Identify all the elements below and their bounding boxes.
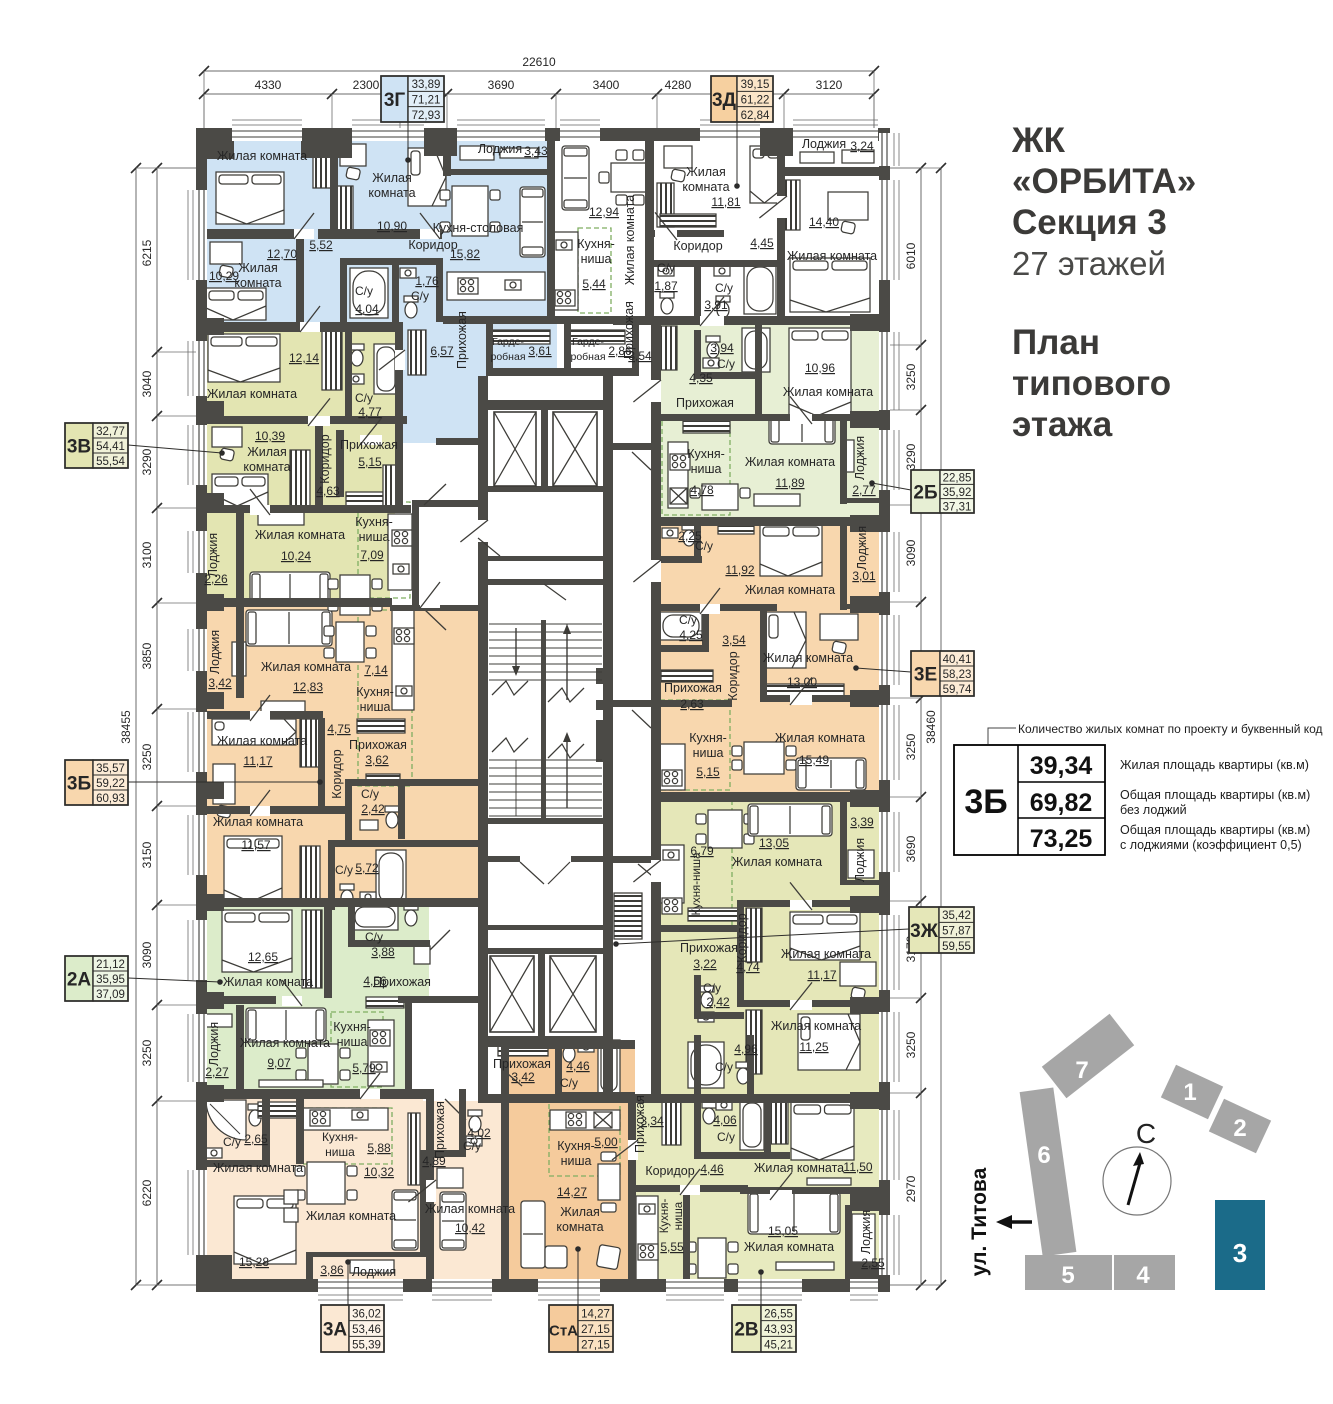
svg-text:4,74: 4,74 — [736, 960, 760, 974]
svg-text:11,17: 11,17 — [807, 968, 836, 982]
svg-text:Жилая: Жилая — [686, 165, 726, 179]
svg-text:4,45: 4,45 — [750, 236, 774, 250]
svg-text:1,76: 1,76 — [415, 274, 439, 288]
svg-text:35,42: 35,42 — [942, 910, 971, 922]
svg-text:Коридор: Коридор — [330, 749, 344, 798]
svg-text:40,41: 40,41 — [943, 654, 972, 666]
svg-text:Жилая комната: Жилая комната — [745, 583, 835, 597]
svg-text:3,62: 3,62 — [365, 753, 389, 767]
svg-text:15,49: 15,49 — [799, 753, 829, 767]
svg-text:11,17: 11,17 — [243, 754, 272, 768]
svg-text:3,39: 3,39 — [850, 815, 874, 829]
svg-text:С/у: С/у — [411, 289, 429, 303]
svg-text:5,44: 5,44 — [582, 277, 606, 291]
svg-text:Лоджия: Лоджия — [859, 1210, 873, 1254]
svg-text:комната: комната — [556, 1220, 603, 1234]
svg-text:3040: 3040 — [140, 370, 154, 397]
svg-text:2300: 2300 — [353, 78, 380, 92]
svg-text:Жилая комната: Жилая комната — [787, 249, 877, 263]
svg-text:С/у: С/у — [715, 1060, 733, 1074]
svg-text:С/у: С/у — [560, 1076, 578, 1090]
svg-text:71,21: 71,21 — [412, 95, 441, 107]
svg-text:5,15: 5,15 — [358, 455, 382, 469]
svg-text:Жилая комната: Жилая комната — [217, 149, 307, 163]
svg-text:3,42: 3,42 — [208, 676, 232, 690]
svg-text:2А: 2А — [67, 970, 92, 991]
svg-text:Жилая комната: Жилая комната — [623, 195, 637, 285]
svg-text:ниша: ниша — [359, 530, 390, 544]
svg-text:Коридор: Коридор — [318, 434, 332, 483]
svg-text:5,55: 5,55 — [660, 1240, 684, 1254]
svg-text:2В: 2В — [734, 1320, 758, 1341]
svg-text:Жилая комната: Жилая комната — [744, 1240, 834, 1254]
svg-text:Жилая комната: Жилая комната — [425, 1202, 515, 1216]
svg-text:38460: 38460 — [924, 710, 938, 744]
svg-text:Жилая комната: Жилая комната — [775, 731, 865, 745]
svg-text:3090: 3090 — [904, 539, 918, 566]
svg-text:3250: 3250 — [904, 1031, 918, 1058]
svg-text:Гарде-: Гарде- — [572, 336, 605, 348]
svg-text:73,25: 73,25 — [1030, 825, 1093, 853]
svg-text:типового: типового — [1012, 364, 1171, 403]
svg-text:ниша: ниша — [337, 1035, 368, 1049]
svg-text:Жилая: Жилая — [238, 261, 278, 275]
svg-text:4,63: 4,63 — [316, 484, 340, 498]
svg-text:27,15: 27,15 — [581, 1324, 610, 1336]
svg-text:с лоджиями (коэффициент 0,5): с лоджиями (коэффициент 0,5) — [1120, 838, 1302, 852]
svg-text:3,94: 3,94 — [710, 341, 734, 355]
svg-text:6220: 6220 — [140, 1179, 154, 1206]
svg-text:Жилая: Жилая — [372, 171, 412, 185]
svg-text:Жилая комната: Жилая комната — [213, 1161, 303, 1175]
svg-text:Кухня-: Кухня- — [333, 1020, 371, 1034]
svg-text:3,54: 3,54 — [628, 349, 652, 363]
svg-text:59,74: 59,74 — [943, 684, 972, 696]
svg-text:комната: комната — [368, 186, 415, 200]
svg-text:Прихожая: Прихожая — [493, 1057, 551, 1071]
svg-text:С/у: С/у — [703, 981, 721, 995]
svg-text:3100: 3100 — [140, 541, 154, 568]
svg-text:Жилая комната: Жилая комната — [255, 528, 345, 542]
svg-text:4,56: 4,56 — [363, 974, 387, 988]
svg-text:С/у: С/у — [355, 284, 373, 298]
svg-text:61,22: 61,22 — [741, 95, 770, 107]
svg-text:3090: 3090 — [140, 941, 154, 968]
svg-text:Прихожая: Прихожая — [676, 396, 734, 410]
svg-text:4,06: 4,06 — [713, 1113, 737, 1127]
svg-text:С/у: С/у — [365, 930, 383, 944]
svg-text:3150: 3150 — [140, 841, 154, 868]
svg-text:2,63: 2,63 — [680, 697, 704, 711]
svg-text:С/у: С/у — [717, 1130, 735, 1144]
svg-text:Жилая комната: Жилая комната — [732, 855, 822, 869]
svg-text:Жилая комната: Жилая комната — [781, 947, 871, 961]
svg-text:5,15: 5,15 — [696, 765, 720, 779]
svg-text:27,15: 27,15 — [581, 1340, 610, 1352]
svg-text:Кухня-: Кухня- — [355, 515, 393, 529]
svg-text:22,85: 22,85 — [943, 473, 972, 485]
svg-text:3,61: 3,61 — [528, 344, 552, 358]
svg-text:Жилая комната: Жилая комната — [771, 1019, 861, 1033]
svg-text:2,42: 2,42 — [706, 995, 730, 1009]
svg-text:7,14: 7,14 — [364, 663, 388, 677]
svg-text:3Б: 3Б — [67, 774, 91, 795]
svg-text:12,14: 12,14 — [289, 351, 319, 365]
svg-text:21,12: 21,12 — [96, 959, 125, 971]
svg-text:3Е: 3Е — [914, 665, 937, 686]
svg-text:3: 3 — [1233, 1238, 1247, 1268]
svg-text:5,00: 5,00 — [594, 1135, 618, 1149]
svg-text:15,05: 15,05 — [768, 1224, 798, 1238]
svg-text:55,39: 55,39 — [352, 1340, 381, 1352]
svg-text:6010: 6010 — [904, 242, 918, 269]
svg-text:26,55: 26,55 — [764, 1308, 793, 1320]
svg-text:комната: комната — [682, 180, 729, 194]
svg-text:2: 2 — [1233, 1115, 1246, 1142]
svg-text:«ОРБИТА»: «ОРБИТА» — [1012, 162, 1196, 201]
svg-text:4: 4 — [1136, 1262, 1150, 1289]
svg-text:Жилая комната: Жилая комната — [306, 1209, 396, 1223]
svg-text:11,92: 11,92 — [725, 563, 754, 577]
svg-text:5,88: 5,88 — [367, 1141, 391, 1155]
svg-text:С/у: С/у — [715, 281, 733, 295]
svg-text:14,27: 14,27 — [581, 1308, 610, 1320]
svg-text:5,72: 5,72 — [355, 861, 379, 875]
svg-text:С/у: С/у — [679, 613, 697, 627]
svg-text:Кухня-: Кухня- — [356, 685, 394, 699]
svg-text:12,70: 12,70 — [267, 247, 297, 261]
svg-text:32,77: 32,77 — [96, 426, 125, 438]
svg-text:Жилая комната: Жилая комната — [763, 651, 853, 665]
svg-text:3Д: 3Д — [712, 90, 737, 111]
svg-text:3,22: 3,22 — [693, 957, 717, 971]
svg-text:Лоджия: Лоджия — [208, 630, 222, 674]
svg-text:2970: 2970 — [904, 1175, 918, 1202]
svg-text:55,54: 55,54 — [96, 456, 125, 468]
svg-text:4,46: 4,46 — [566, 1059, 590, 1073]
svg-text:7: 7 — [1075, 1057, 1088, 1084]
svg-text:С/у: С/у — [361, 787, 379, 801]
svg-text:12,83: 12,83 — [293, 680, 323, 694]
svg-text:39,34: 39,34 — [1030, 752, 1093, 780]
svg-text:33,89: 33,89 — [412, 79, 441, 91]
svg-text:59,22: 59,22 — [96, 778, 125, 790]
svg-text:3В: 3В — [67, 437, 91, 458]
svg-text:10,32: 10,32 — [364, 1165, 394, 1179]
svg-text:36,02: 36,02 — [352, 1308, 381, 1320]
svg-text:Жилая комната: Жилая комната — [207, 387, 297, 401]
svg-text:69,82: 69,82 — [1030, 789, 1093, 817]
svg-text:9,07: 9,07 — [267, 1056, 291, 1070]
svg-text:Жилая комната: Жилая комната — [754, 1161, 844, 1175]
svg-text:1: 1 — [1183, 1079, 1196, 1106]
svg-text:4,75: 4,75 — [327, 722, 351, 736]
svg-text:Жилая: Жилая — [560, 1205, 600, 1219]
svg-text:ниша: ниша — [581, 252, 612, 266]
svg-text:11,57: 11,57 — [241, 838, 270, 852]
svg-text:37,31: 37,31 — [943, 501, 972, 513]
svg-text:3,01: 3,01 — [852, 569, 876, 583]
svg-text:Жилая комната: Жилая комната — [213, 815, 303, 829]
svg-text:3,43: 3,43 — [524, 144, 548, 158]
svg-text:Кухня-ниша: Кухня-ниша — [691, 852, 703, 916]
svg-text:без лоджий: без лоджий — [1120, 803, 1187, 817]
svg-text:6,79: 6,79 — [690, 844, 714, 858]
svg-text:6215: 6215 — [140, 239, 154, 266]
svg-text:35,95: 35,95 — [96, 974, 125, 986]
svg-text:11,81: 11,81 — [711, 195, 740, 209]
svg-text:2Б: 2Б — [913, 483, 937, 504]
svg-text:С/у: С/у — [657, 261, 675, 275]
svg-text:45,21: 45,21 — [764, 1340, 793, 1352]
svg-text:3290: 3290 — [904, 443, 918, 470]
svg-text:2,25: 2,25 — [678, 529, 702, 543]
svg-text:2,27: 2,27 — [205, 1065, 229, 1079]
svg-text:4,96: 4,96 — [734, 1042, 758, 1056]
svg-text:ниша: ниша — [691, 462, 722, 476]
svg-text:6,57: 6,57 — [430, 344, 454, 358]
svg-text:Лоджия: Лоджия — [853, 436, 867, 480]
svg-text:С/у: С/у — [717, 357, 735, 371]
svg-text:4280: 4280 — [665, 78, 692, 92]
svg-text:ниша: ниша — [325, 1145, 355, 1159]
svg-text:комната: комната — [243, 460, 290, 474]
svg-text:10,29: 10,29 — [209, 269, 239, 283]
svg-text:5: 5 — [1061, 1262, 1074, 1289]
svg-text:3,88: 3,88 — [371, 945, 395, 959]
svg-text:3690: 3690 — [904, 835, 918, 862]
svg-text:Секция 3: Секция 3 — [1012, 203, 1167, 242]
svg-text:14,27: 14,27 — [557, 1185, 587, 1199]
svg-text:35,57: 35,57 — [96, 763, 125, 775]
svg-text:3Г: 3Г — [384, 90, 406, 111]
svg-text:Коридор: Коридор — [673, 239, 722, 253]
svg-text:27 этажей: 27 этажей — [1012, 245, 1166, 282]
svg-text:Прихожая: Прихожая — [455, 311, 469, 369]
svg-text:4,04: 4,04 — [355, 302, 379, 316]
svg-text:Коридор: Коридор — [645, 1164, 694, 1178]
svg-text:С/у: С/у — [335, 863, 353, 877]
svg-text:Лоджия: Лоджия — [207, 1022, 221, 1066]
svg-text:Кухня-: Кухня- — [659, 1199, 671, 1234]
svg-text:Жилая комната: Жилая комната — [261, 660, 351, 674]
svg-text:4,78: 4,78 — [690, 483, 714, 497]
svg-text:1,87: 1,87 — [654, 279, 678, 293]
svg-text:3А: 3А — [323, 1320, 348, 1341]
svg-text:6: 6 — [1037, 1142, 1050, 1169]
svg-text:13,05: 13,05 — [759, 836, 789, 850]
svg-text:3,42: 3,42 — [511, 1070, 535, 1084]
svg-text:Общая площадь квартиры (кв.м): Общая площадь квартиры (кв.м) — [1120, 788, 1310, 802]
svg-text:С/у: С/у — [355, 391, 373, 405]
svg-text:58,23: 58,23 — [943, 669, 972, 681]
svg-text:10,39: 10,39 — [255, 429, 285, 443]
svg-text:3,24: 3,24 — [850, 139, 874, 153]
svg-text:Жилая комната: Жилая комната — [217, 734, 307, 748]
svg-text:57,87: 57,87 — [942, 926, 971, 938]
svg-text:Жилая площадь квартиры (кв.м): Жилая площадь квартиры (кв.м) — [1120, 758, 1309, 772]
svg-text:62,84: 62,84 — [741, 110, 770, 122]
svg-text:Жилая комната: Жилая комната — [240, 1036, 330, 1050]
svg-text:10,24: 10,24 — [281, 549, 311, 563]
svg-text:План: План — [1012, 323, 1100, 362]
svg-text:35,92: 35,92 — [943, 487, 972, 499]
svg-text:3,54: 3,54 — [722, 633, 746, 647]
svg-text:Гарде-: Гарде- — [492, 336, 525, 348]
svg-text:37,09: 37,09 — [96, 989, 125, 1001]
svg-text:2,42: 2,42 — [361, 802, 385, 816]
svg-text:3290: 3290 — [140, 448, 154, 475]
svg-text:59,55: 59,55 — [942, 941, 971, 953]
svg-text:12,65: 12,65 — [248, 950, 278, 964]
svg-text:этажа: этажа — [1012, 405, 1113, 444]
svg-text:Коридор: Коридор — [726, 651, 740, 700]
svg-text:60,93: 60,93 — [96, 793, 125, 805]
svg-text:11,89: 11,89 — [775, 476, 804, 490]
svg-text:ниша: ниша — [673, 1201, 685, 1230]
svg-text:Жилая комната: Жилая комната — [223, 975, 313, 989]
svg-text:3690: 3690 — [488, 78, 515, 92]
svg-text:3Б: 3Б — [964, 783, 1007, 821]
svg-text:4,46: 4,46 — [700, 1162, 724, 1176]
svg-text:ниша: ниша — [693, 746, 724, 760]
svg-text:Лоджия: Лоджия — [853, 838, 867, 882]
svg-text:Прихожая: Прихожая — [680, 941, 738, 955]
svg-text:ниша: ниша — [561, 1154, 592, 1168]
svg-text:3,34: 3,34 — [640, 1114, 664, 1128]
svg-text:11,50: 11,50 — [843, 1160, 872, 1174]
svg-text:12,94: 12,94 — [589, 205, 619, 219]
svg-text:Лоджия: Лоджия — [352, 1265, 396, 1279]
svg-text:Прихожая: Прихожая — [340, 438, 398, 452]
svg-text:Кухня-: Кухня- — [687, 447, 725, 461]
svg-text:Жилая: Жилая — [247, 445, 287, 459]
svg-text:Лоджия: Лоджия — [802, 137, 846, 151]
svg-text:22610: 22610 — [522, 55, 556, 69]
svg-text:3850: 3850 — [140, 642, 154, 669]
svg-text:Количество жилых комнат по про: Количество жилых комнат по проекту и бук… — [1018, 722, 1323, 736]
svg-text:15,28: 15,28 — [239, 1255, 269, 1269]
svg-text:72,93: 72,93 — [412, 110, 441, 122]
svg-text:Лоджия: Лоджия — [478, 142, 522, 156]
svg-text:3,86: 3,86 — [320, 1263, 344, 1277]
svg-text:Кухня-: Кухня- — [557, 1139, 595, 1153]
svg-text:Жилая комната: Жилая комната — [783, 385, 873, 399]
svg-text:ЖК: ЖК — [1011, 121, 1066, 160]
svg-text:С/у: С/у — [223, 1135, 241, 1149]
svg-text:Прихожая: Прихожая — [349, 738, 407, 752]
svg-text:4330: 4330 — [255, 78, 282, 92]
svg-text:С: С — [1136, 1118, 1156, 1149]
svg-text:3250: 3250 — [140, 743, 154, 770]
svg-text:Жилая комната: Жилая комната — [745, 455, 835, 469]
svg-text:53,46: 53,46 — [352, 1324, 381, 1336]
svg-text:10,96: 10,96 — [805, 361, 835, 375]
svg-text:робная: робная — [570, 351, 605, 363]
svg-text:14,40: 14,40 — [809, 215, 839, 229]
svg-text:4,35: 4,35 — [689, 371, 713, 385]
svg-text:Кухня-: Кухня- — [322, 1130, 358, 1144]
svg-text:СтА: СтА — [549, 1323, 578, 1340]
svg-text:4,77: 4,77 — [358, 405, 382, 419]
svg-text:3Ж: 3Ж — [910, 921, 939, 942]
svg-text:38455: 38455 — [119, 710, 133, 744]
svg-text:Общая площадь квартиры (кв.м): Общая площадь квартиры (кв.м) — [1120, 823, 1310, 837]
svg-text:Кухня-: Кухня- — [689, 731, 727, 745]
svg-text:2,55: 2,55 — [861, 1256, 885, 1270]
svg-text:Кухня-: Кухня- — [577, 237, 615, 251]
svg-text:11,25: 11,25 — [799, 1040, 828, 1054]
svg-text:робная: робная — [490, 351, 525, 363]
svg-text:10,90: 10,90 — [377, 219, 407, 233]
svg-text:Лоджия: Лоджия — [206, 533, 220, 577]
svg-text:5,52: 5,52 — [309, 238, 333, 252]
svg-text:2,65: 2,65 — [244, 1132, 268, 1146]
svg-text:4,25: 4,25 — [679, 628, 703, 642]
svg-text:Прихожая: Прихожая — [433, 1101, 447, 1159]
svg-text:Лоджия: Лоджия — [855, 526, 869, 570]
svg-text:3250: 3250 — [904, 733, 918, 760]
svg-text:43,93: 43,93 — [764, 1324, 793, 1336]
svg-text:39,15: 39,15 — [741, 79, 770, 91]
svg-text:3250: 3250 — [140, 1039, 154, 1066]
svg-text:С/у: С/у — [463, 1139, 481, 1153]
svg-text:комната: комната — [234, 276, 281, 290]
svg-text:3,91: 3,91 — [704, 298, 728, 312]
svg-text:Кухня-столовая: Кухня-столовая — [433, 221, 524, 235]
svg-text:7,09: 7,09 — [360, 548, 384, 562]
svg-text:2,26: 2,26 — [204, 572, 228, 586]
svg-text:3250: 3250 — [904, 363, 918, 390]
svg-text:4,02: 4,02 — [467, 1126, 491, 1140]
svg-text:3400: 3400 — [593, 78, 620, 92]
svg-text:ниша: ниша — [360, 700, 391, 714]
svg-text:ул. Титова: ул. Титова — [968, 1167, 991, 1276]
svg-text:15,82: 15,82 — [450, 247, 480, 261]
svg-text:13,00: 13,00 — [787, 675, 817, 689]
svg-text:3120: 3120 — [816, 78, 843, 92]
svg-text:Прихожая: Прихожая — [664, 681, 722, 695]
svg-text:5,79: 5,79 — [352, 1061, 376, 1075]
svg-text:10,42: 10,42 — [455, 1221, 485, 1235]
svg-text:54,41: 54,41 — [96, 441, 125, 453]
